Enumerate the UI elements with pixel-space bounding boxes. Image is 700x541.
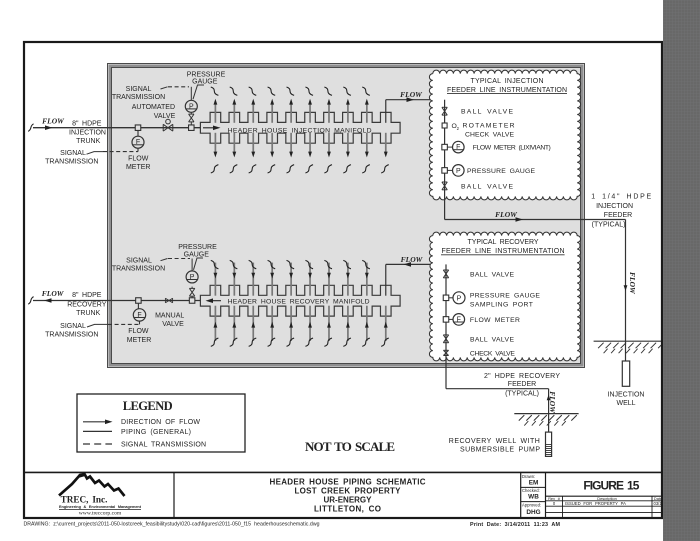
svg-text:TYPICAL RECOVERY: TYPICAL RECOVERY bbox=[468, 239, 539, 246]
svg-text:SIGNAL: SIGNAL bbox=[60, 323, 86, 330]
svg-text:HEADER HOUSE PIPING SCHEMATIC: HEADER HOUSE PIPING SCHEMATIC bbox=[270, 477, 426, 486]
svg-text:HEADER HOUSE RECOVERY MANIFOLD: HEADER HOUSE RECOVERY MANIFOLD bbox=[228, 298, 370, 305]
svg-text:VALVE: VALVE bbox=[162, 321, 184, 328]
svg-text:EM: EM bbox=[529, 480, 539, 487]
svg-text:DRAWING: z:\current_projects\2: DRAWING: z:\current_projects\2011-050-lo… bbox=[24, 521, 320, 527]
svg-text:BALL VALVE: BALL VALVE bbox=[461, 109, 513, 116]
svg-text:SIGNAL: SIGNAL bbox=[126, 257, 152, 264]
svg-text:SIGNAL: SIGNAL bbox=[60, 150, 86, 157]
svg-text:FEEDER: FEEDER bbox=[604, 212, 632, 219]
svg-text:PRESSURE: PRESSURE bbox=[187, 71, 226, 78]
svg-text:NOT TO SCALE: NOT TO SCALE bbox=[305, 439, 395, 454]
svg-text:SIGNAL TRANSMISSION: SIGNAL TRANSMISSION bbox=[121, 441, 206, 448]
svg-text:DIRECTION OF FLOW: DIRECTION OF FLOW bbox=[121, 419, 200, 426]
svg-text:www.treccorp.com: www.treccorp.com bbox=[79, 511, 122, 517]
svg-text:ISSUED FOR PROPERTY PA: ISSUED FOR PROPERTY PA bbox=[565, 501, 626, 506]
svg-text:TRANSMISSION: TRANSMISSION bbox=[112, 265, 165, 272]
svg-text:PRESSURE GAUGE: PRESSURE GAUGE bbox=[467, 168, 535, 175]
svg-text:TYPICAL INJECTION: TYPICAL INJECTION bbox=[471, 78, 544, 85]
svg-text:METER: METER bbox=[127, 337, 152, 344]
svg-text:8" HDPE: 8" HDPE bbox=[72, 292, 102, 299]
svg-text:(TYPICAL): (TYPICAL) bbox=[505, 391, 539, 398]
svg-text:SIGNAL: SIGNAL bbox=[126, 86, 152, 93]
svg-text:PRESSURE: PRESSURE bbox=[178, 244, 217, 251]
svg-text:SUBMERSIBLE PUMP: SUBMERSIBLE PUMP bbox=[460, 447, 540, 454]
svg-text:F: F bbox=[137, 312, 141, 319]
svg-text:FLOW: FLOW bbox=[628, 272, 637, 295]
svg-text:WB: WB bbox=[528, 494, 539, 501]
svg-text:WELL: WELL bbox=[616, 400, 635, 407]
svg-text:LITTLETON, CO: LITTLETON, CO bbox=[314, 504, 381, 513]
svg-text:FLOW: FLOW bbox=[495, 210, 518, 219]
svg-text:MANUAL: MANUAL bbox=[155, 312, 184, 319]
svg-text:VALVE: VALVE bbox=[154, 113, 176, 120]
svg-text:P: P bbox=[456, 168, 461, 175]
svg-text:LEGEND: LEGEND bbox=[123, 399, 173, 413]
svg-text:TRANSMISSION: TRANSMISSION bbox=[45, 332, 98, 339]
svg-text:FLOW: FLOW bbox=[42, 289, 65, 298]
svg-text:BALL VALVE: BALL VALVE bbox=[461, 184, 513, 191]
svg-text:RECOVERY WELL WITH: RECOVERY WELL WITH bbox=[449, 438, 540, 445]
svg-text:FIGURE 15: FIGURE 15 bbox=[583, 478, 639, 492]
svg-text:P: P bbox=[189, 103, 194, 110]
svg-text:SAMPLING PORT: SAMPLING PORT bbox=[470, 301, 533, 308]
svg-text:P: P bbox=[457, 295, 462, 302]
svg-text:PRESSURE GAUGE: PRESSURE GAUGE bbox=[470, 293, 540, 300]
svg-text:DHG: DHG bbox=[526, 509, 540, 516]
svg-text:TRANSMISSION: TRANSMISSION bbox=[112, 94, 165, 101]
svg-text:LOST CREEK PROPERTY: LOST CREEK PROPERTY bbox=[295, 486, 402, 495]
svg-text:2" HDPE RECOVERY: 2" HDPE RECOVERY bbox=[484, 373, 560, 380]
svg-text:GAUGE: GAUGE bbox=[184, 251, 210, 258]
svg-text:BALL VALVE: BALL VALVE bbox=[470, 272, 514, 279]
svg-text:Drawn:: Drawn: bbox=[522, 474, 535, 479]
svg-text:Print Date: 3/14/2011 11:23 A: Print Date: 3/14/2011 11:23 AM bbox=[470, 522, 561, 528]
svg-text:(TYPICAL): (TYPICAL) bbox=[592, 221, 626, 228]
svg-text:P: P bbox=[190, 274, 195, 281]
svg-text:HEADER HOUSE INJECTION MANIFOL: HEADER HOUSE INJECTION MANIFOLD bbox=[228, 128, 372, 135]
svg-text:UR-ENERGY: UR-ENERGY bbox=[324, 495, 373, 504]
svg-text:FLOW: FLOW bbox=[400, 90, 423, 99]
svg-text:CHECK VALVE: CHECK VALVE bbox=[470, 351, 515, 358]
svg-text:BALL VALVE: BALL VALVE bbox=[470, 336, 514, 343]
svg-text:Checked:: Checked: bbox=[522, 488, 540, 493]
svg-text:TRANSMISSION: TRANSMISSION bbox=[45, 159, 98, 166]
svg-text:FLOW: FLOW bbox=[401, 255, 424, 264]
svg-text:FLOW METER (LIXIVIANT): FLOW METER (LIXIVIANT) bbox=[473, 145, 551, 152]
svg-text:8" HDPE: 8" HDPE bbox=[72, 120, 102, 127]
svg-text:FEEDER LINE INSTRUMENTATION: FEEDER LINE INSTRUMENTATION bbox=[447, 87, 567, 94]
svg-text:TREC, Inc.: TREC, Inc. bbox=[61, 495, 108, 505]
svg-text:ROTAMETER: ROTAMETER bbox=[463, 123, 515, 130]
svg-text:Engineering & Environmental Ma: Engineering & Environmental Management bbox=[59, 505, 142, 509]
svg-text:INJECTION: INJECTION bbox=[608, 392, 645, 399]
svg-text:FEEDER LINE INSTRUMENTATION: FEEDER LINE INSTRUMENTATION bbox=[442, 248, 565, 255]
svg-text:RECOVERY: RECOVERY bbox=[67, 301, 106, 308]
svg-text:PIPING (GENERAL): PIPING (GENERAL) bbox=[121, 429, 191, 436]
svg-text:F: F bbox=[456, 144, 460, 151]
svg-text:FEEDER: FEEDER bbox=[508, 381, 536, 388]
svg-text:FLOW: FLOW bbox=[42, 116, 65, 125]
svg-text:TRUNK: TRUNK bbox=[76, 138, 100, 145]
svg-text:F: F bbox=[136, 139, 140, 146]
svg-text:FLOW: FLOW bbox=[128, 155, 149, 162]
svg-text:FLOW METER: FLOW METER bbox=[470, 317, 520, 324]
svg-text:F: F bbox=[457, 316, 461, 323]
svg-text:1 1/4" HDPE: 1 1/4" HDPE bbox=[591, 194, 651, 201]
svg-text:AUTOMATED: AUTOMATED bbox=[132, 104, 175, 111]
svg-text:FLOW: FLOW bbox=[128, 328, 149, 335]
svg-text:FLOW: FLOW bbox=[548, 391, 557, 414]
svg-text:CHECK VALVE: CHECK VALVE bbox=[465, 131, 514, 138]
svg-text:INJECTION: INJECTION bbox=[69, 130, 106, 137]
svg-text:TRUNK: TRUNK bbox=[76, 310, 100, 317]
svg-text:METER: METER bbox=[126, 164, 151, 171]
svg-text:0: 0 bbox=[553, 501, 556, 506]
svg-text:GAUGE: GAUGE bbox=[192, 79, 218, 86]
svg-text:Approved:: Approved: bbox=[522, 502, 541, 507]
svg-text:INJECTION: INJECTION bbox=[596, 203, 633, 210]
